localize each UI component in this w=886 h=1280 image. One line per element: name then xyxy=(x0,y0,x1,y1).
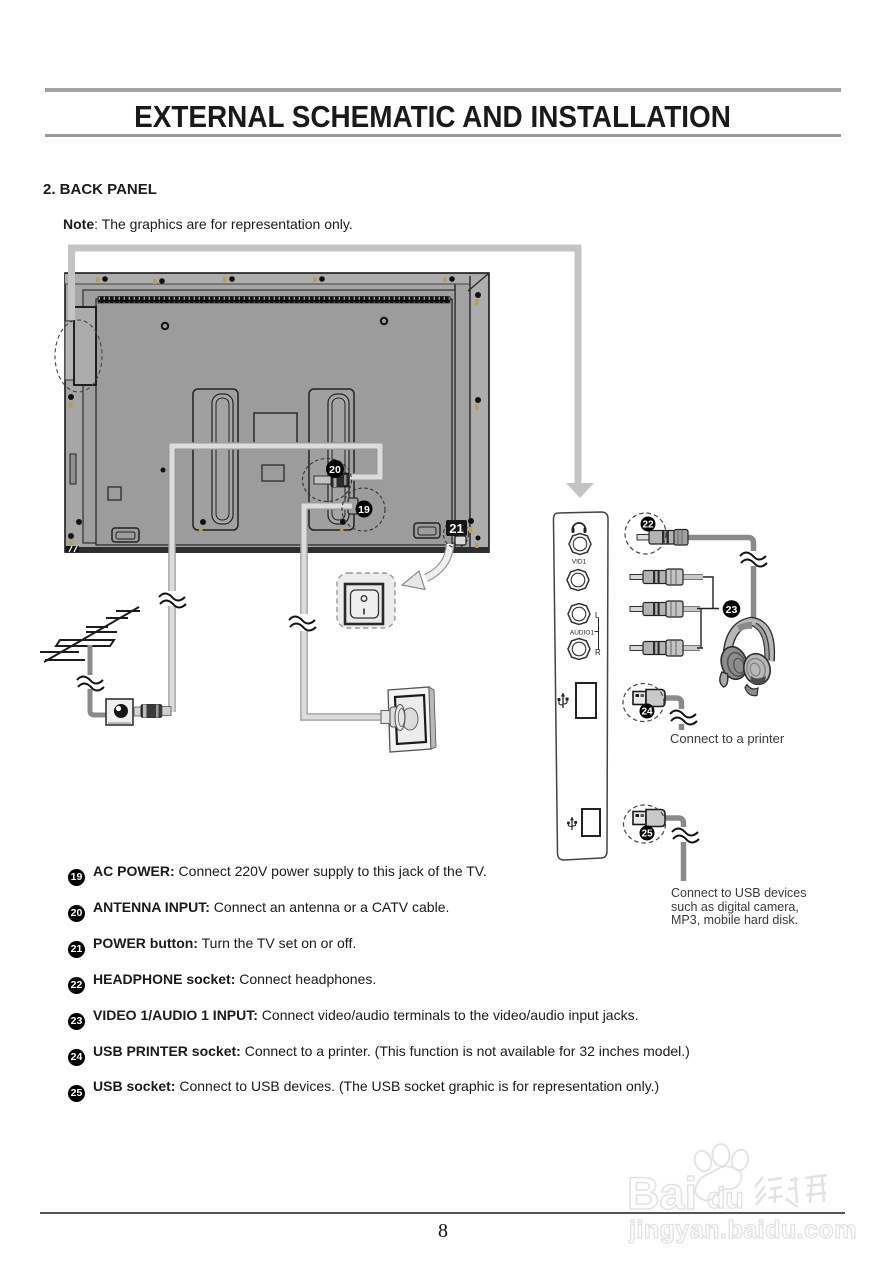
svg-text:20: 20 xyxy=(329,464,341,476)
svg-text:Connect to a printer: Connect to a printer xyxy=(670,731,785,746)
svg-text:21: 21 xyxy=(449,521,463,536)
svg-text:24: 24 xyxy=(641,707,653,718)
svg-text:25: 25 xyxy=(641,829,653,840)
svg-text:19: 19 xyxy=(358,504,370,516)
svg-text:du: du xyxy=(707,1182,744,1215)
svg-text:VID1: VID1 xyxy=(572,559,587,566)
svg-text:22: 22 xyxy=(642,520,654,531)
svg-text:AUDIO1: AUDIO1 xyxy=(570,630,595,637)
svg-text:L: L xyxy=(595,611,600,620)
svg-text:23: 23 xyxy=(726,604,738,616)
